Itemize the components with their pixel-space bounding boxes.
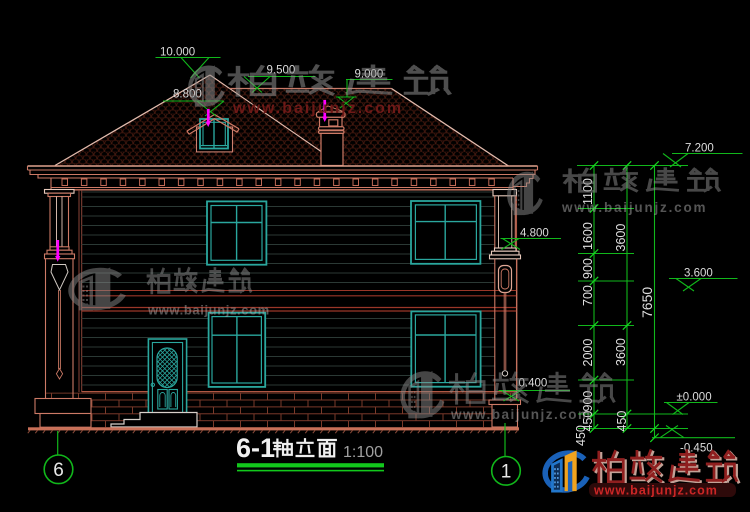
- svg-text:700: 700: [581, 285, 595, 306]
- svg-text:6: 6: [53, 460, 64, 481]
- svg-text:6-1: 6-1: [236, 433, 275, 463]
- svg-text:2000: 2000: [581, 339, 595, 367]
- svg-text:3600: 3600: [614, 224, 628, 252]
- svg-text:1:100: 1:100: [343, 444, 383, 461]
- svg-text:3600: 3600: [614, 338, 628, 366]
- svg-text:www.baijunjz.com: www.baijunjz.com: [593, 484, 718, 498]
- svg-text:7.200: 7.200: [685, 143, 714, 155]
- svg-text:www.baijunjz.com: www.baijunjz.com: [450, 407, 592, 422]
- svg-text:4.800: 4.800: [520, 228, 549, 240]
- svg-text:www.baijunjz.com: www.baijunjz.com: [561, 200, 707, 215]
- svg-text:7650: 7650: [639, 287, 655, 318]
- svg-text:450: 450: [615, 411, 629, 432]
- svg-text:8.800: 8.800: [173, 89, 202, 101]
- svg-text:10.000: 10.000: [160, 47, 195, 59]
- svg-text:900: 900: [581, 258, 595, 279]
- svg-text:450: 450: [574, 425, 588, 446]
- svg-text:www.baijunjz.com: www.baijunjz.com: [232, 100, 403, 117]
- svg-text:3.600: 3.600: [684, 268, 713, 280]
- svg-text:-0.450: -0.450: [680, 443, 713, 455]
- svg-text:1600: 1600: [581, 222, 595, 250]
- svg-text:www.baijunjz.com: www.baijunjz.com: [147, 303, 270, 318]
- svg-text:1: 1: [501, 462, 512, 483]
- svg-text:±0.000: ±0.000: [677, 392, 712, 404]
